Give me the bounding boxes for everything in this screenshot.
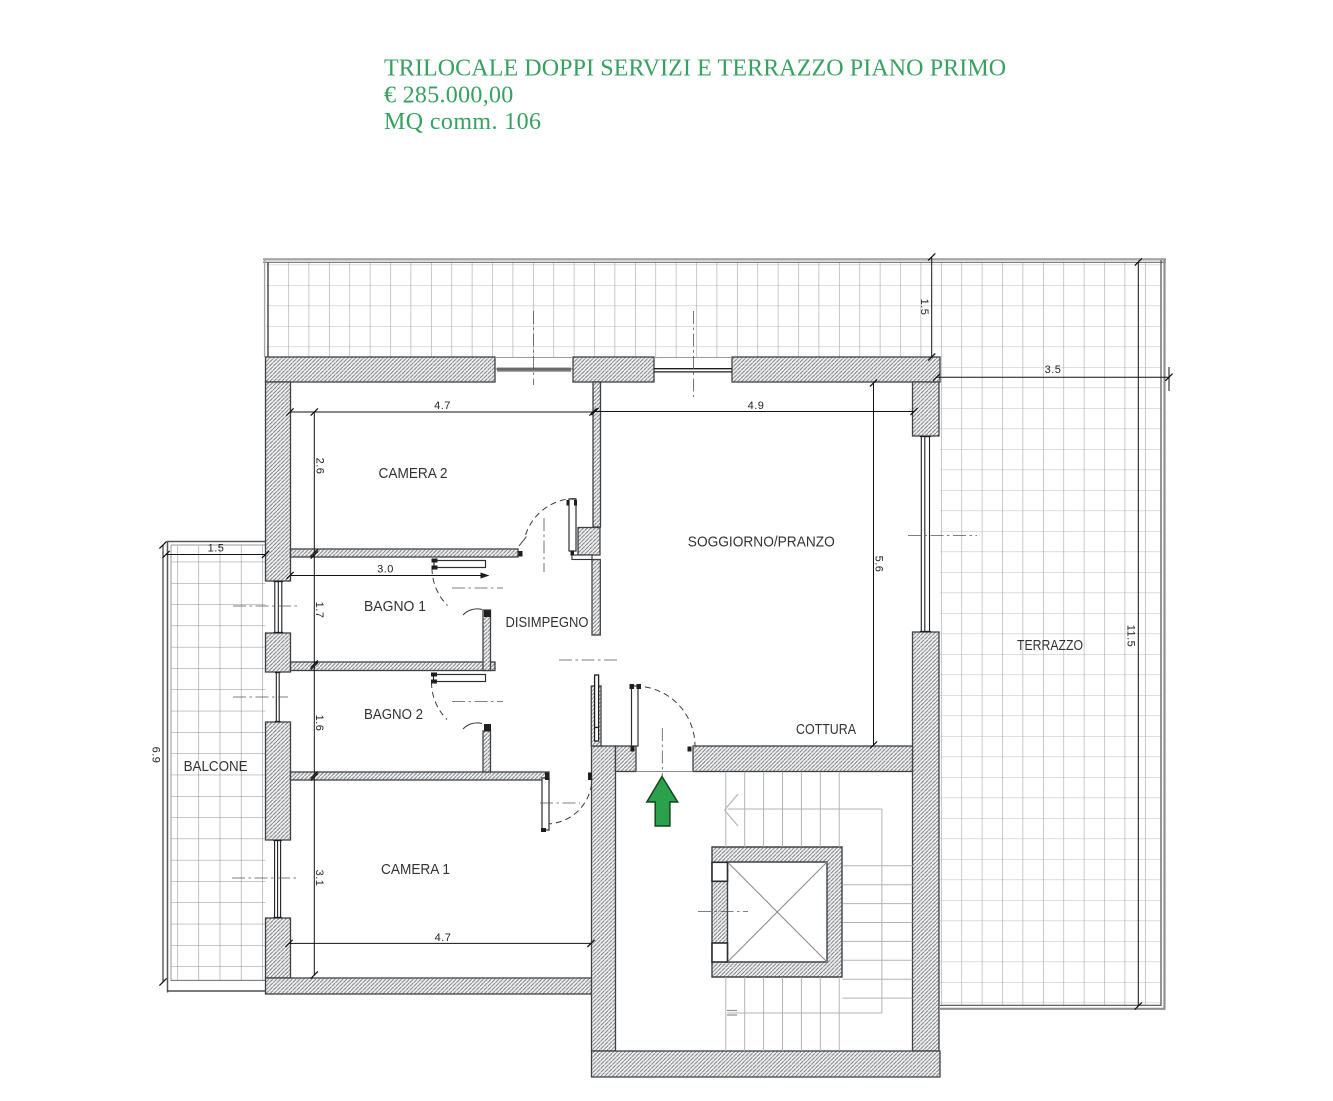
svg-text:€ 285.000,00: € 285.000,00 xyxy=(384,83,514,109)
svg-text:COTTURA: COTTURA xyxy=(796,721,856,738)
svg-text:CAMERA 2: CAMERA 2 xyxy=(379,465,448,482)
svg-text:1.7: 1.7 xyxy=(313,602,325,619)
svg-text:5.6: 5.6 xyxy=(873,556,885,573)
svg-text:1.5: 1.5 xyxy=(208,543,225,555)
svg-text:BALCONE: BALCONE xyxy=(184,758,248,775)
svg-text:11.5: 11.5 xyxy=(1125,625,1137,648)
svg-text:TRILOCALE DOPPI SERVIZI E TERR: TRILOCALE DOPPI SERVIZI E TERRAZZO PIANO… xyxy=(384,56,1006,82)
svg-text:DISIMPEGNO: DISIMPEGNO xyxy=(506,614,589,631)
svg-text:3.0: 3.0 xyxy=(377,564,394,576)
svg-text:TERRAZZO: TERRAZZO xyxy=(1017,637,1083,654)
svg-text:CAMERA 1: CAMERA 1 xyxy=(381,861,450,878)
svg-text:4.7: 4.7 xyxy=(435,932,452,944)
svg-text:1.6: 1.6 xyxy=(313,715,325,732)
svg-text:BAGNO 2: BAGNO 2 xyxy=(364,706,423,723)
svg-text:SOGGIORNO/PRANZO: SOGGIORNO/PRANZO xyxy=(688,534,835,551)
svg-text:3.1: 3.1 xyxy=(313,870,325,887)
svg-text:3.5: 3.5 xyxy=(1045,364,1062,376)
svg-text:1.5: 1.5 xyxy=(918,299,930,316)
svg-text:2.6: 2.6 xyxy=(313,458,325,475)
svg-text:4.7: 4.7 xyxy=(434,400,451,412)
svg-text:4.9: 4.9 xyxy=(748,400,765,412)
svg-text:BAGNO 1: BAGNO 1 xyxy=(364,598,426,615)
svg-text:MQ comm. 106: MQ comm. 106 xyxy=(384,109,541,135)
svg-text:6.9: 6.9 xyxy=(150,747,162,764)
